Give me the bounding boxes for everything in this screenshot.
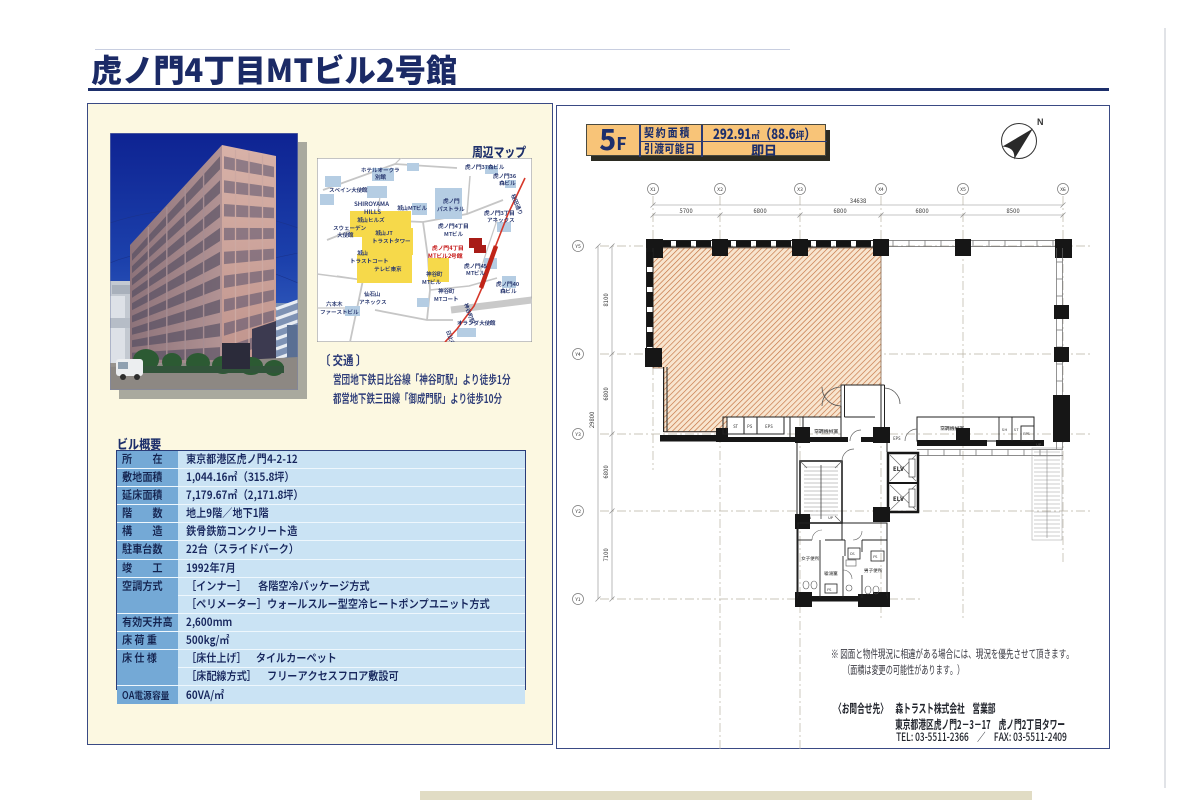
svg-text:UP: UP (828, 516, 834, 521)
svg-text:34638: 34638 (850, 196, 867, 205)
svg-text:神谷町: 神谷町 (438, 287, 455, 295)
svg-text:X6: X6 (1060, 186, 1066, 193)
svg-text:Y2: Y2 (575, 508, 581, 515)
svg-text:MTコート: MTコート (434, 295, 459, 303)
svg-text:給湯室: 給湯室 (824, 570, 838, 577)
svg-text:男子便所: 男子便所 (863, 567, 883, 574)
svg-text:森ビル: 森ビル (499, 179, 516, 187)
svg-text:神谷町: 神谷町 (426, 270, 443, 278)
svg-text:空調機械室: 空調機械室 (814, 428, 838, 435)
svg-text:7100: 7100 (601, 548, 610, 561)
svg-text:オランダ大使館: オランダ大使館 (457, 319, 496, 327)
svg-text:城山JT: 城山JT (375, 229, 393, 237)
svg-text:29800: 29800 (587, 412, 596, 429)
svg-text:6800: 6800 (601, 465, 610, 478)
svg-text:トラストコート: トラストコート (350, 257, 389, 265)
svg-text:ファーストビル: ファーストビル (320, 308, 359, 316)
svg-text:X3: X3 (797, 186, 802, 193)
svg-text:アネックス: アネックス (487, 216, 515, 224)
svg-text:EPS: EPS (765, 424, 773, 430)
svg-text:Y5: Y5 (575, 243, 581, 250)
svg-text:6800: 6800 (833, 206, 846, 215)
svg-text:6800: 6800 (601, 387, 610, 400)
svg-text:城山: 城山 (357, 249, 368, 257)
svg-text:トラストタワー: トラストタワー (372, 237, 410, 245)
svg-text:Y3: Y3 (575, 431, 580, 438)
svg-text:虎ノ門: 虎ノ門 (443, 197, 460, 205)
svg-text:DS: DS (850, 552, 855, 557)
svg-text:ST: ST (1014, 428, 1019, 433)
svg-text:PS: PS (747, 424, 753, 430)
svg-text:城山MTビル: 城山MTビル (397, 204, 427, 212)
svg-text:X2: X2 (717, 186, 723, 193)
svg-text:5700: 5700 (678, 206, 692, 215)
svg-text:PS: PS (827, 588, 831, 593)
svg-text:虎ノ門37森ビル: 虎ノ門37森ビル (465, 163, 505, 171)
svg-text:EPS: EPS (893, 436, 901, 442)
svg-text:テレビ東京: テレビ東京 (374, 265, 402, 273)
svg-text:ST: ST (733, 424, 738, 430)
svg-text:X1: X1 (650, 186, 656, 193)
svg-text:6800: 6800 (915, 206, 928, 215)
svg-text:EPS: EPS (1023, 432, 1031, 437)
svg-text:SH: SH (1002, 428, 1007, 433)
svg-text:別館: 別館 (374, 173, 386, 181)
svg-text:ELV: ELV (893, 494, 904, 503)
svg-text:UP: UP (1036, 443, 1042, 448)
svg-text:女子便所: 女子便所 (801, 555, 820, 562)
svg-text:MTビル2号館: MTビル2号館 (428, 251, 463, 260)
svg-text:城山ヒルズ: 城山ヒルズ (357, 216, 385, 224)
svg-text:MTビル: MTビル (422, 278, 441, 286)
svg-text:8100: 8100 (601, 293, 610, 306)
svg-text:MTビル: MTビル (444, 230, 463, 238)
svg-text:HILLS: HILLS (364, 207, 381, 216)
svg-text:ELV: ELV (893, 464, 904, 473)
svg-text:大使館: 大使館 (336, 231, 354, 239)
svg-text:Y1: Y1 (575, 596, 581, 603)
svg-text:虎ノ門4丁目: 虎ノ門4丁目 (438, 222, 469, 230)
svg-text:MTビル: MTビル (466, 269, 485, 277)
svg-text:8500: 8500 (1006, 206, 1019, 215)
svg-text:森ビル: 森ビル (500, 287, 517, 295)
svg-text:X5: X5 (960, 186, 966, 193)
svg-text:パストラル: パストラル (437, 205, 465, 213)
svg-text:6800: 6800 (753, 206, 766, 215)
svg-text:六本木: 六本木 (325, 300, 343, 308)
svg-text:スペイン大使館: スペイン大使館 (329, 186, 368, 194)
svg-text:アネックス: アネックス (359, 298, 387, 306)
svg-text:PS: PS (873, 555, 877, 560)
svg-text:仙石山: 仙石山 (364, 290, 381, 298)
